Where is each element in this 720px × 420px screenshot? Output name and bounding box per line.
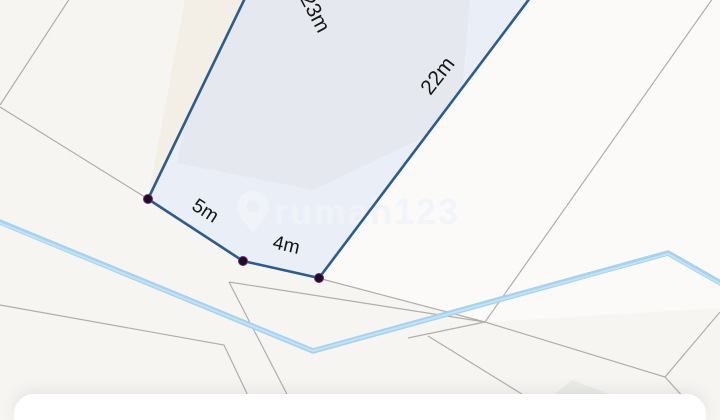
property-map-screen: rumah123 23m 22m 5m 4m	[0, 0, 720, 420]
parcel-line	[428, 336, 525, 396]
watermark-brand-text: rumah123	[274, 191, 460, 232]
plot-vertex-handle[interactable]	[315, 274, 324, 283]
parcel-line	[229, 282, 290, 400]
map-canvas[interactable]: rumah123 23m 22m 5m 4m	[0, 0, 720, 420]
parcel-line	[0, 0, 70, 105]
bottom-sheet[interactable]	[14, 394, 706, 420]
parcel-line	[0, 305, 250, 400]
plot-vertex-handle[interactable]	[144, 195, 153, 204]
parcel-line	[485, 312, 720, 377]
plot-vertex-handle[interactable]	[239, 257, 248, 266]
parcel-line	[0, 107, 148, 199]
